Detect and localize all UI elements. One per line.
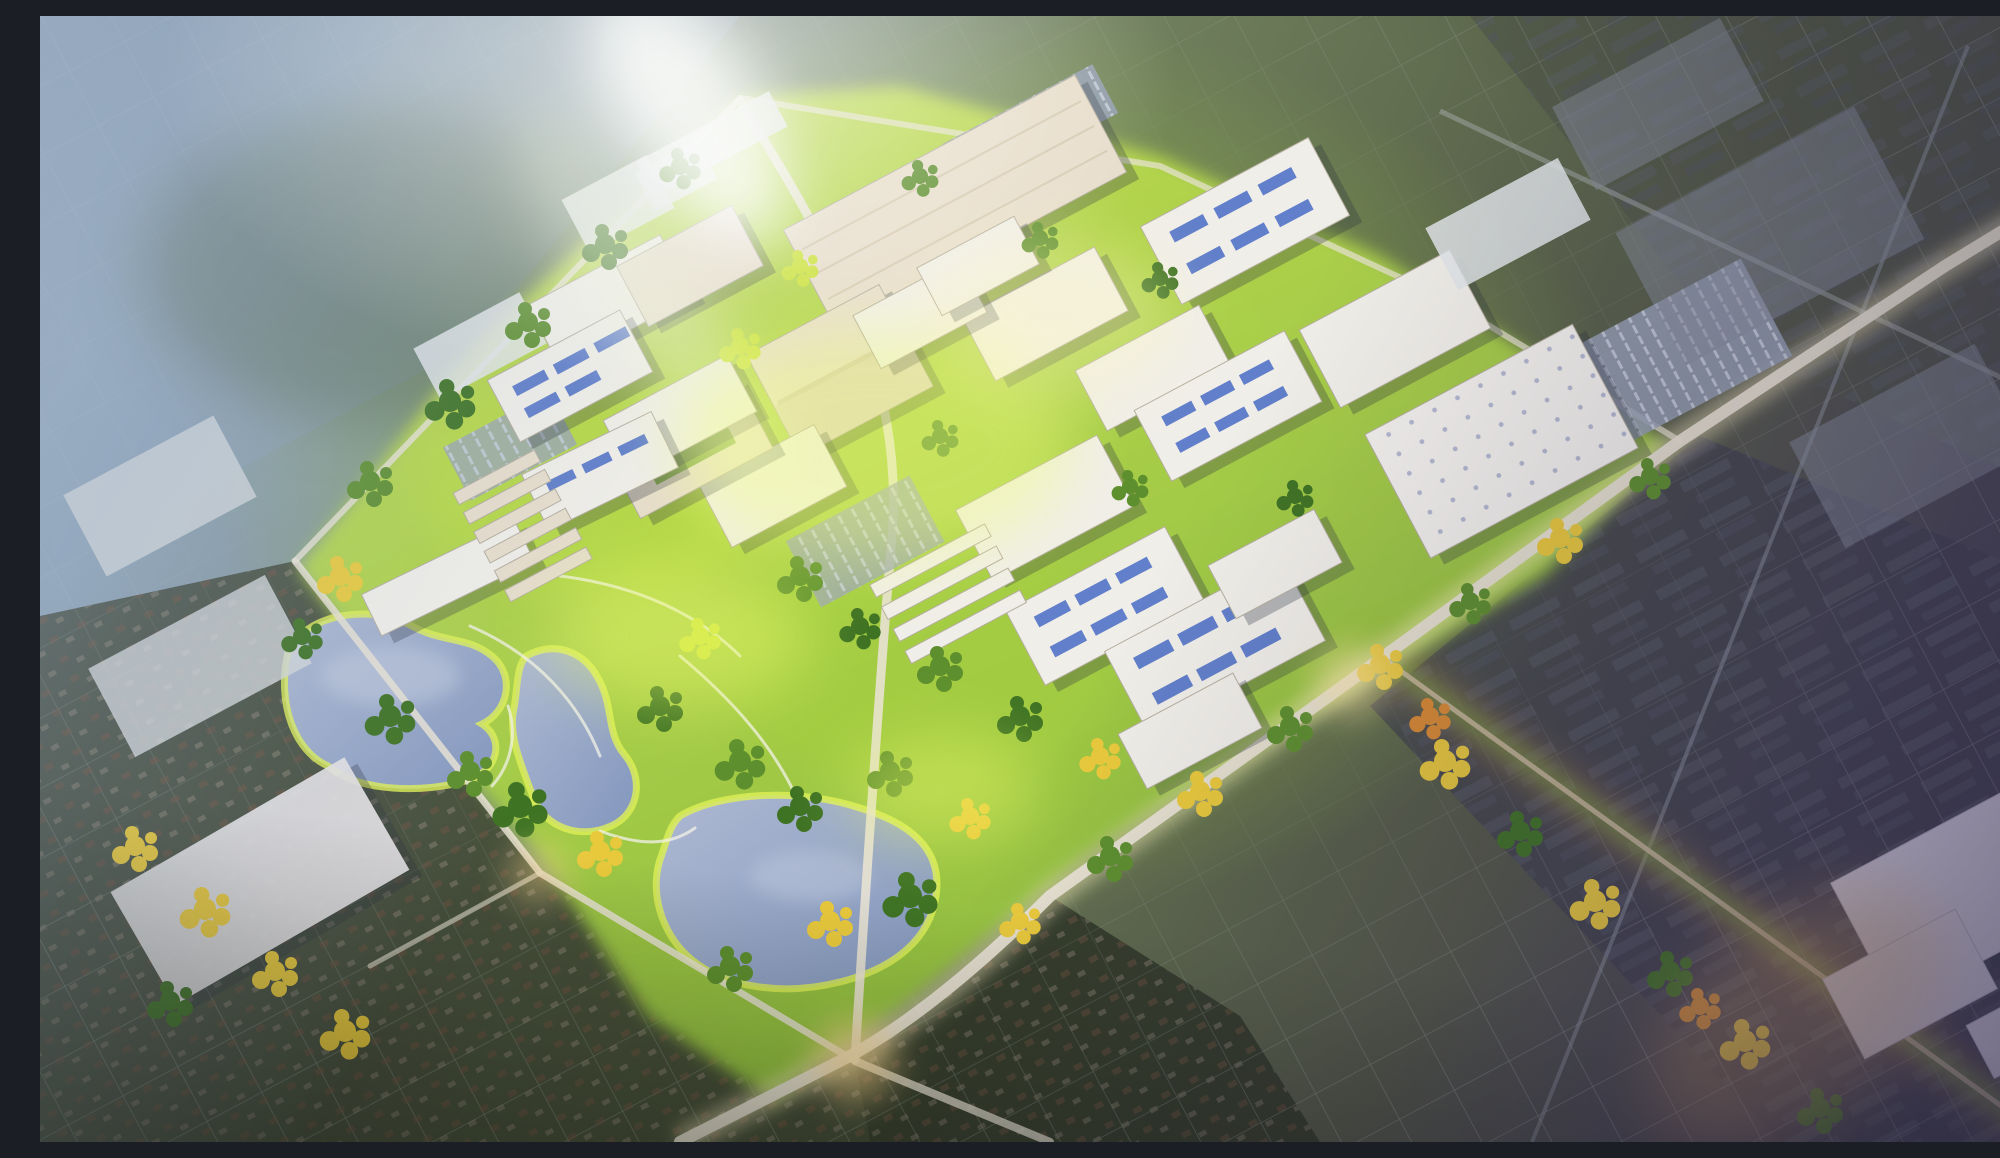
intersection-glow [508, 844, 568, 904]
sunlight-patch [920, 236, 1180, 396]
intersection-glow [1314, 645, 1386, 717]
intersection-glow [813, 1019, 897, 1103]
rendering-scene: Sunlit aerial rendering of a master-plan… [40, 16, 2000, 1142]
lake-sparkle [750, 850, 870, 902]
sunlight-patch [550, 566, 810, 706]
aerial-rendering: Sunlit aerial rendering of a master-plan… [40, 16, 2000, 1142]
sunlight-patch [850, 736, 1040, 846]
